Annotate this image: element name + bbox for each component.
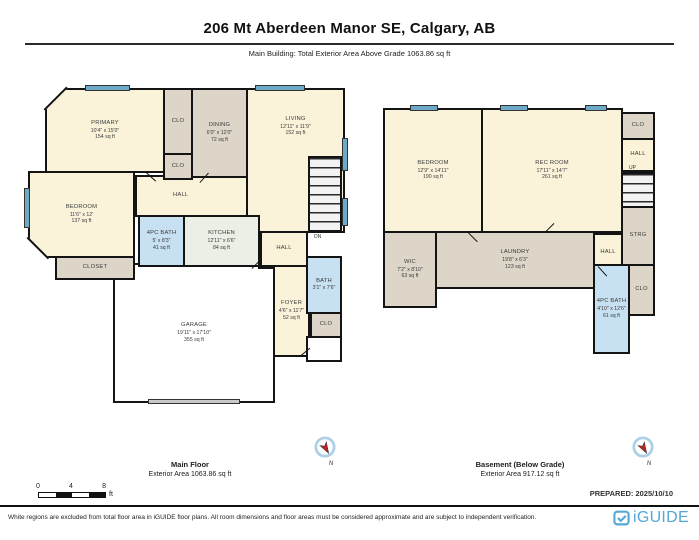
window (85, 85, 130, 91)
room-basement-closet-2: CLO (628, 264, 655, 316)
window (342, 198, 348, 226)
window (255, 85, 305, 91)
floorplan-page: 206 Mt Aberdeen Manor SE, Calgary, AB Ma… (0, 0, 699, 540)
scale-bar-segments (38, 492, 106, 498)
compass-basement: N (630, 436, 656, 467)
window (500, 105, 528, 111)
room-foyer: FOYER 4'6" x 11'7" 52 sq ft (273, 265, 310, 357)
window (585, 105, 607, 111)
room-wic: WIC 7'2" x 8'10" 63 sq ft (383, 231, 437, 308)
porch (306, 336, 342, 362)
garage-door (148, 399, 240, 404)
room-bath-2pc: BATH 3'1" x 7'6" (306, 256, 342, 314)
room-closet-bedroom: CLOSET (55, 256, 135, 280)
compass-icon (314, 436, 336, 458)
stairs-dn-label: DN (314, 234, 321, 240)
footer-divider (0, 505, 699, 507)
room-closet-1: CLO (163, 88, 193, 155)
page-title: 206 Mt Aberdeen Manor SE, Calgary, AB (0, 20, 699, 37)
room-bedroom: BEDROOM 11'6" x 12' 137 sq ft (28, 171, 135, 258)
basement-caption: Basement (Below Grade) Exterior Area 917… (430, 460, 610, 478)
room-rec-room: REC ROOM 17'11" x 14'7" 261 sq ft (481, 108, 623, 233)
footer-disclaimer: White regions are excluded from total fl… (8, 514, 568, 521)
room-laundry: LAUNDRY 19'8" x 6'3" 123 sq ft (435, 231, 595, 289)
window (24, 188, 30, 228)
main-floor-caption: Main Floor Exterior Area 1063.86 sq ft (100, 460, 280, 478)
iguide-logo-icon (613, 510, 630, 526)
stairs-down (308, 156, 342, 232)
stairs-up (621, 172, 655, 208)
room-basement-hall-1: HALL (621, 138, 655, 172)
room-primary: PRIMARY 10'4" x 15'0" 154 sq ft (45, 88, 165, 173)
compass-main: N (312, 436, 338, 467)
scale-bar-unit: ft (109, 491, 113, 498)
stairs-up-label: UP (629, 165, 636, 171)
room-dining: DINING 6'0" x 12'0" 72 sq ft (191, 88, 248, 178)
room-storage: STRG (621, 206, 655, 266)
compass-icon (632, 436, 654, 458)
room-4pc-bath: 4PC BATH 5' x 8'3" 41 sq ft (138, 215, 185, 267)
window (342, 138, 348, 171)
room-basement-closet-1: CLO (621, 112, 655, 140)
iguide-logo-text: iGUIDE (633, 509, 689, 527)
room-hall-2: HALL (260, 231, 308, 267)
room-kitchen: KITCHEN 12'11" x 6'6" 84 sq ft (183, 215, 260, 267)
room-closet-2: CLO (163, 153, 193, 180)
room-basement-bedroom: BEDROOM 12'9" x 14'11" 190 sq ft (383, 108, 483, 233)
room-closet-foyer: CLO (310, 312, 342, 338)
scale-bar: 0 4 8 ft (38, 483, 113, 498)
room-garage: GARAGE 19'11" x 17'10" 355 sq ft (113, 263, 275, 403)
prepared-date: PREPARED: 2025/10/10 (590, 489, 673, 498)
scale-bar-ticks: 0 4 8 (36, 483, 106, 490)
page-subtitle: Main Building: Total Exterior Area Above… (0, 49, 699, 58)
window (410, 105, 438, 111)
iguide-logo: iGUIDE (613, 509, 689, 527)
title-divider (25, 43, 674, 45)
room-basement-bath: 4PC BATH 4'10" x 12'6" 61 sq ft (593, 264, 630, 354)
